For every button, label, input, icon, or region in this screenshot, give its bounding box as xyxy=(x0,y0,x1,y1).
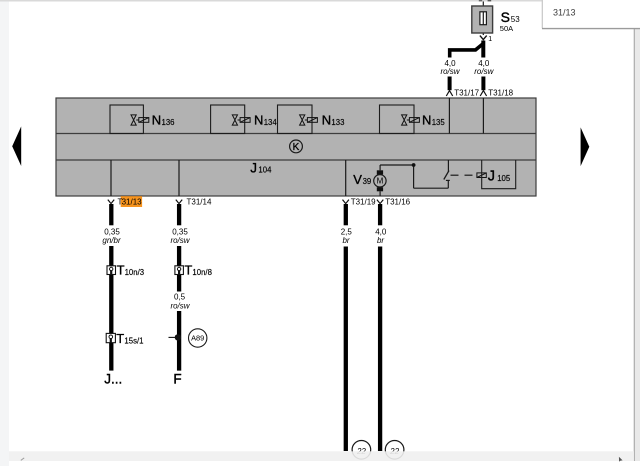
svg-text:N: N xyxy=(422,113,431,128)
svg-text:135: 135 xyxy=(432,118,446,127)
svg-text:T31/19: T31/19 xyxy=(351,198,376,207)
svg-text:gn/br: gn/br xyxy=(102,236,121,245)
svg-text:K: K xyxy=(293,142,300,153)
svg-text:ro/sw: ro/sw xyxy=(170,302,190,311)
svg-text:T31/18: T31/18 xyxy=(488,88,513,97)
svg-text:104: 104 xyxy=(258,166,272,175)
svg-text:T: T xyxy=(116,331,124,346)
svg-text:M: M xyxy=(377,177,384,186)
svg-text:T31/16: T31/16 xyxy=(385,198,410,207)
svg-text:0,5: 0,5 xyxy=(174,293,186,302)
svg-text:J...: J... xyxy=(104,372,122,387)
svg-text:15s/1: 15s/1 xyxy=(124,336,143,345)
svg-text:133: 133 xyxy=(331,118,344,127)
svg-text:10n/8: 10n/8 xyxy=(192,268,212,277)
svg-text:F: F xyxy=(173,372,181,387)
svg-text:39: 39 xyxy=(363,177,372,186)
svg-text:br: br xyxy=(342,236,349,245)
svg-text:ro/sw: ro/sw xyxy=(474,67,494,76)
svg-text:105: 105 xyxy=(497,174,511,183)
svg-text:N: N xyxy=(322,113,331,128)
svg-text:31/13: 31/13 xyxy=(553,8,576,18)
svg-text:ro/sw: ro/sw xyxy=(440,67,460,76)
svg-text:V: V xyxy=(353,172,362,187)
svg-text:A89: A89 xyxy=(191,334,204,343)
svg-text:T: T xyxy=(117,263,125,278)
svg-text:T31/14: T31/14 xyxy=(187,198,212,207)
svg-text:53: 53 xyxy=(511,15,520,24)
svg-text:134: 134 xyxy=(264,118,278,127)
svg-text:31/13: 31/13 xyxy=(122,198,143,207)
svg-text:J: J xyxy=(250,160,257,175)
svg-text:T31/17: T31/17 xyxy=(454,88,479,97)
svg-text:S: S xyxy=(501,9,510,25)
svg-text:1: 1 xyxy=(488,36,492,43)
svg-text:N: N xyxy=(152,113,161,128)
svg-text:T: T xyxy=(184,263,192,278)
svg-text:ro/sw: ro/sw xyxy=(170,236,190,245)
svg-text:J: J xyxy=(488,168,495,184)
svg-text:br: br xyxy=(377,236,384,245)
svg-text:10n/3: 10n/3 xyxy=(125,268,145,277)
svg-text:50A: 50A xyxy=(500,24,513,33)
svg-text:N: N xyxy=(254,113,263,128)
svg-text:136: 136 xyxy=(162,118,175,127)
